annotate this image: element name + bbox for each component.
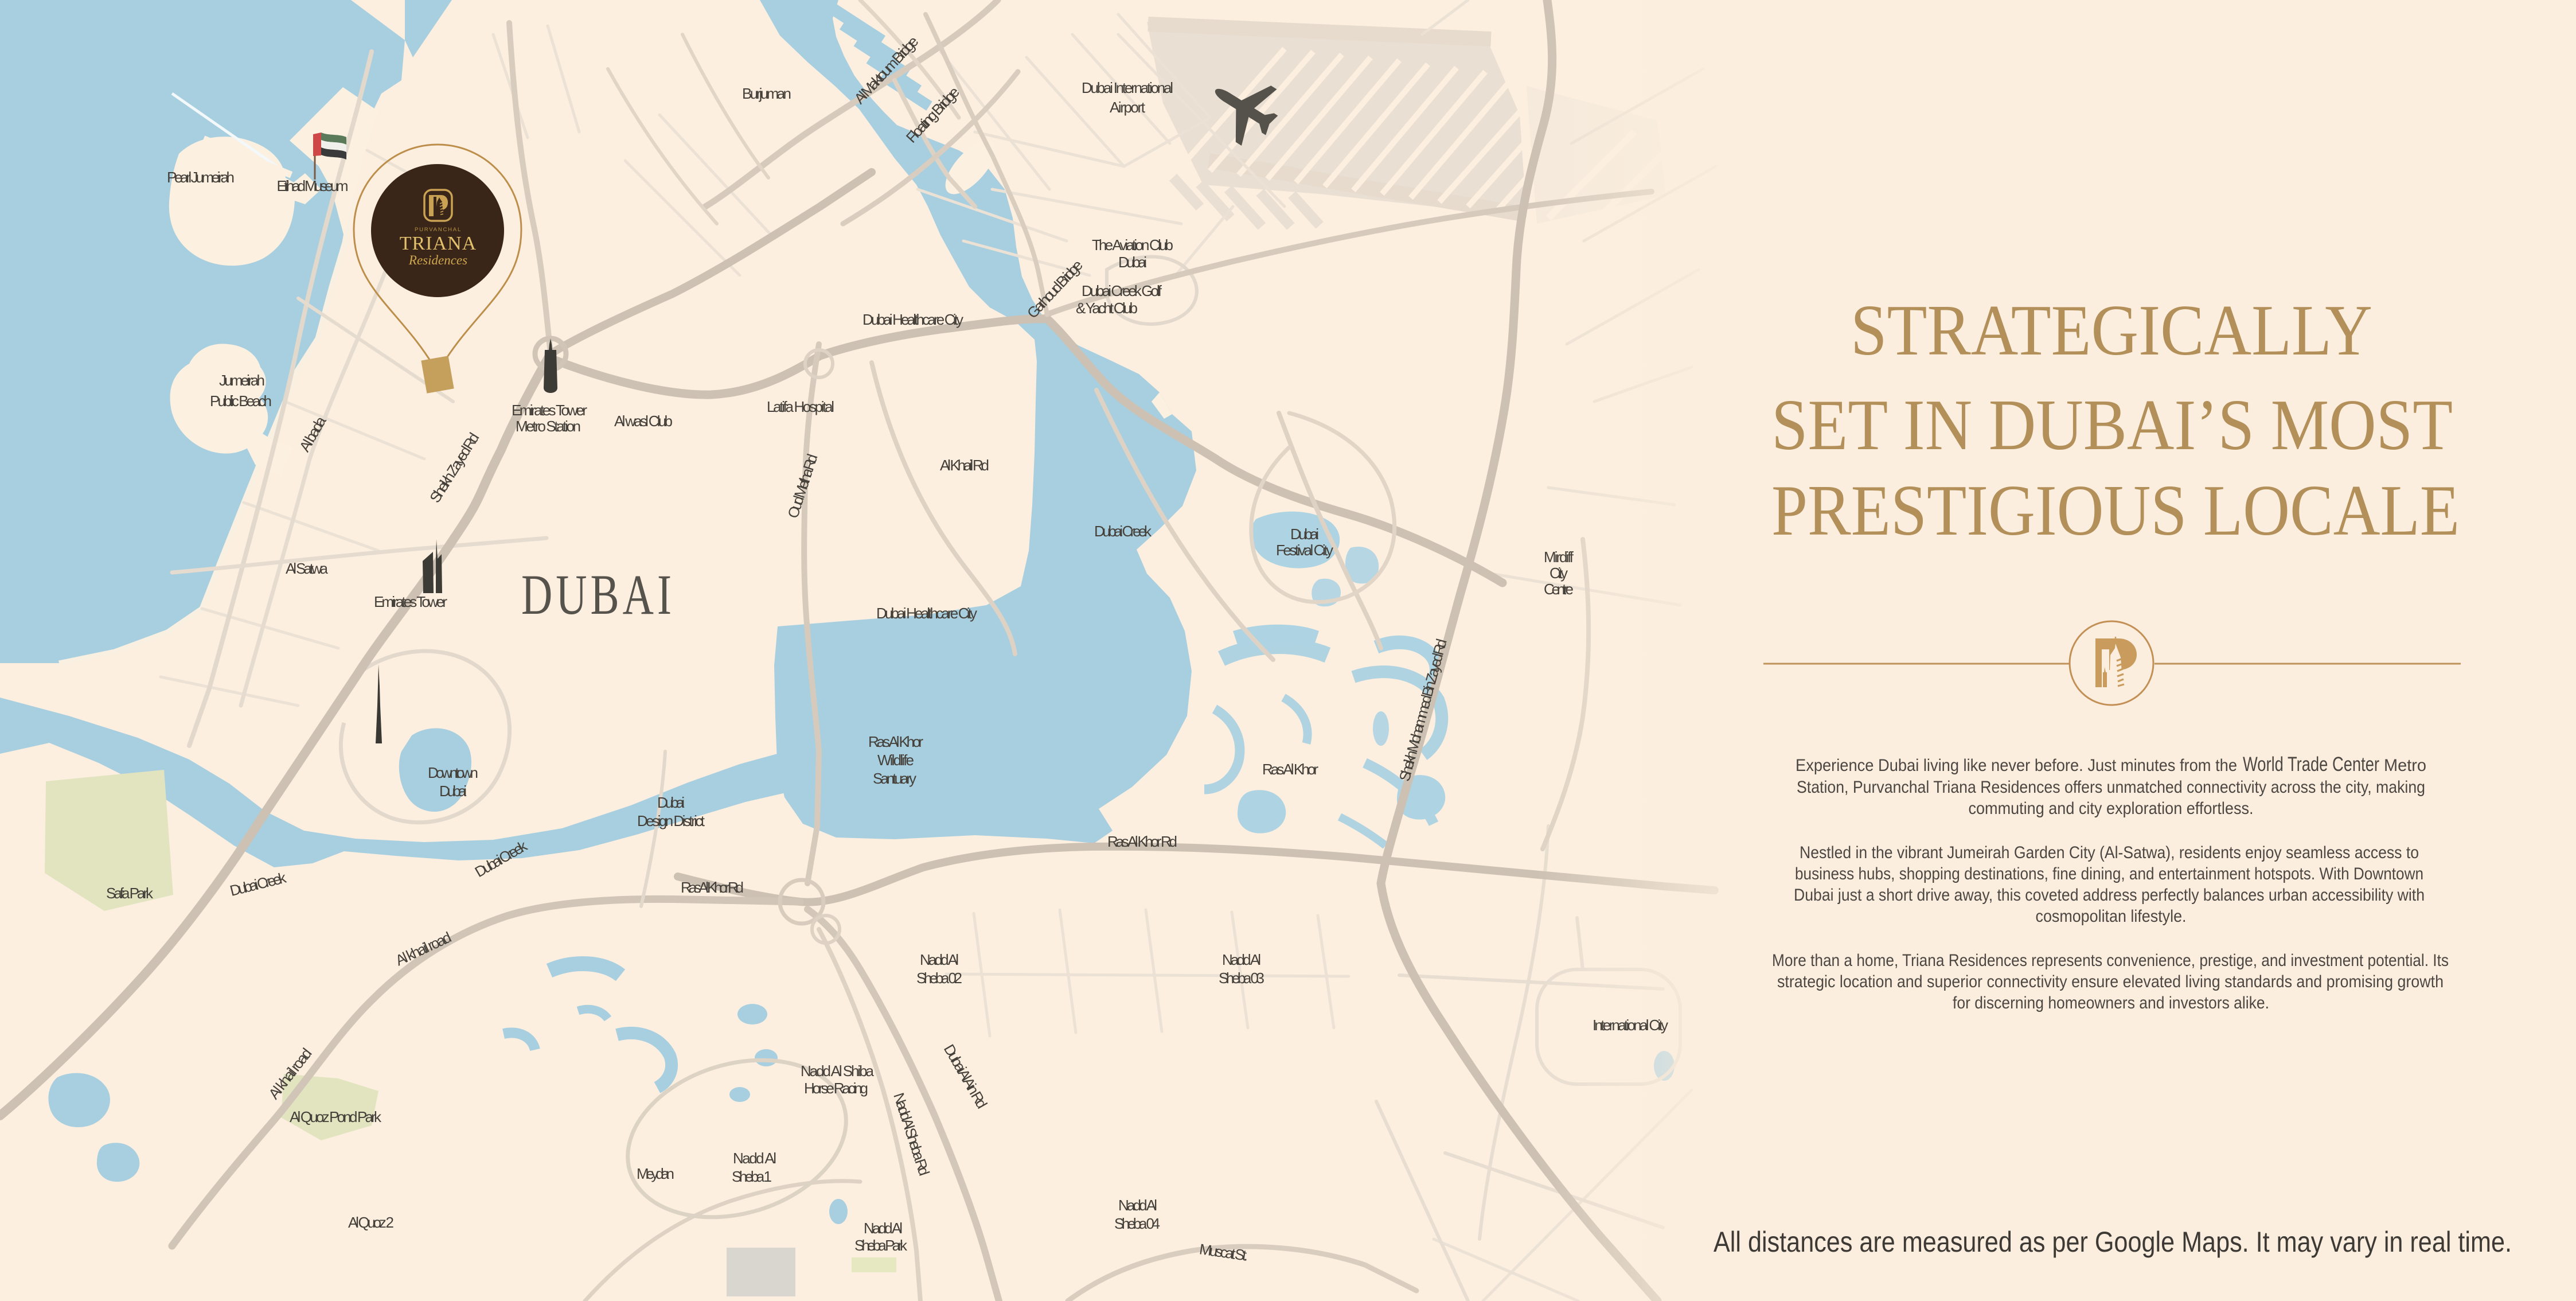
svg-text:More than a home, Triana Resid: More than a home, Triana Residences repr… [1772, 951, 2449, 970]
svg-text:Metro: Metro [2384, 756, 2426, 775]
svg-text:DUBAI: DUBAI [521, 563, 675, 626]
svg-text:Residences: Residences [408, 253, 467, 267]
svg-text:Meydan: Meydan [637, 1165, 674, 1182]
svg-text:STRATEGICALLY: STRATEGICALLY [1851, 291, 2372, 371]
svg-text:commuting and city exploration: commuting and city exploration effortles… [1969, 799, 2254, 818]
svg-text:Airport: Airport [1110, 99, 1146, 116]
svg-text:Dubai just a short drive away,: Dubai just a short drive away, this cove… [1794, 886, 2425, 905]
svg-text:Festival City: Festival City [1276, 542, 1333, 559]
svg-text:Mirdiff: Mirdiff [1544, 548, 1574, 566]
svg-text:Safa Park: Safa Park [106, 885, 154, 902]
svg-text:Emirates Tower: Emirates Tower [374, 593, 447, 610]
svg-text:Downtown: Downtown [428, 764, 478, 781]
svg-text:Sheba 02: Sheba 02 [916, 969, 962, 987]
svg-text:strategic location and superio: strategic location and superior connecti… [1777, 972, 2444, 991]
svg-text:Nadd Al Shiba: Nadd Al Shiba [801, 1062, 875, 1080]
svg-text:Nadd Al: Nadd Al [920, 951, 959, 968]
svg-text:Dubai Creek Golf: Dubai Creek Golf [1082, 282, 1162, 299]
svg-text:Ras Al Khor Rd: Ras Al Khor Rd [1107, 833, 1177, 850]
svg-text:Dubai International: Dubai International [1082, 79, 1173, 96]
svg-text:PURVANCHAL: PURVANCHAL [415, 227, 462, 233]
svg-text:Santuary: Santuary [873, 770, 916, 787]
svg-text:World Trade Center: World Trade Center [2243, 753, 2379, 776]
svg-text:Horse Racing: Horse Racing [804, 1080, 868, 1097]
svg-text:Metro Station: Metro Station [516, 418, 581, 435]
svg-text:cosmopolitan lifestyle.: cosmopolitan lifestyle. [2036, 907, 2187, 926]
svg-text:Nadd Al: Nadd Al [1222, 951, 1261, 968]
svg-text:The Aviation Club: The Aviation Club [1092, 236, 1173, 254]
svg-text:Pearl Jumeirah: Pearl Jumeirah [167, 169, 235, 186]
svg-text:Dubai Creek: Dubai Creek [1094, 523, 1152, 540]
svg-text:Sheba Park: Sheba Park [854, 1237, 908, 1254]
svg-text:Nadd Al: Nadd Al [1118, 1197, 1157, 1214]
svg-text:Latifa Hospital: Latifa Hospital [767, 398, 834, 415]
svg-text:Al wasl Club: Al wasl Club [614, 412, 673, 430]
svg-text:Emirates Tower: Emirates Tower [512, 402, 587, 419]
svg-text:for discerning homeowners and: for discerning homeowners and investors … [1953, 994, 2269, 1012]
svg-text:Centre: Centre [1544, 581, 1574, 598]
svg-text:Wildlife: Wildlife [877, 751, 914, 769]
svg-text:Etihad Museum: Etihad Museum [277, 177, 349, 194]
svg-text:City: City [1549, 564, 1568, 582]
svg-text:Burjuman: Burjuman [742, 85, 791, 102]
svg-text:Dubai: Dubai [657, 794, 685, 811]
svg-text:Jumeirah: Jumeirah [219, 372, 265, 389]
svg-text:Al Quoz 2: Al Quoz 2 [348, 1214, 394, 1231]
svg-text:Experience Dubai living like n: Experience Dubai living like never befor… [1796, 756, 2237, 775]
svg-text:Ras Al Khor: Ras Al Khor [868, 733, 923, 750]
svg-text:business hubs, shopping destin: business hubs, shopping destinations, fi… [1795, 864, 2423, 883]
svg-text:Al Satwa: Al Satwa [286, 560, 329, 577]
svg-text:International City: International City [1593, 1016, 1668, 1034]
svg-text:Dubai: Dubai [1118, 254, 1147, 271]
svg-text:Dubai: Dubai [439, 782, 467, 800]
svg-text:Nadd Al: Nadd Al [733, 1150, 776, 1167]
svg-text:Station, Purvanchal Triana Res: Station, Purvanchal Triana Residences of… [1797, 778, 2425, 797]
svg-text:SET IN DUBAI’S MOST: SET IN DUBAI’S MOST [1771, 385, 2453, 465]
svg-text:Sheba 1: Sheba 1 [732, 1168, 772, 1185]
svg-text:Ras Al Khor: Ras Al Khor [1262, 761, 1318, 778]
svg-text:Nadd Al: Nadd Al [864, 1220, 903, 1237]
svg-text:Dubai: Dubai [1290, 525, 1319, 543]
svg-text:Al Quoz Pond Park: Al Quoz Pond Park [290, 1108, 382, 1125]
svg-text:Design District: Design District [637, 812, 705, 829]
svg-text:TRIANA: TRIANA [400, 233, 477, 254]
svg-text:Nestled in the vibrant Jumeira: Nestled in the vibrant Jumeirah Garden C… [1800, 843, 2419, 862]
svg-text:Ras Al Khor Rd: Ras Al Khor Rd [681, 879, 744, 896]
svg-text:Al Khail Rd: Al Khail Rd [940, 457, 989, 474]
svg-text:Dubai Healthcare City: Dubai Healthcare City [876, 605, 977, 622]
svg-text:PRESTIGIOUS LOCALE: PRESTIGIOUS LOCALE [1771, 471, 2460, 551]
svg-text:Public Beach: Public Beach [210, 392, 272, 410]
svg-text:& Yacht Club: & Yacht Club [1076, 299, 1138, 317]
svg-text:Sheba 04: Sheba 04 [1114, 1215, 1160, 1232]
svg-text:Dubai Healthcare City: Dubai Healthcare City [862, 311, 963, 328]
svg-text:Sheba 03: Sheba 03 [1219, 969, 1264, 987]
svg-text:All distances are measured as: All distances are measured as per Google… [1714, 1226, 2512, 1258]
